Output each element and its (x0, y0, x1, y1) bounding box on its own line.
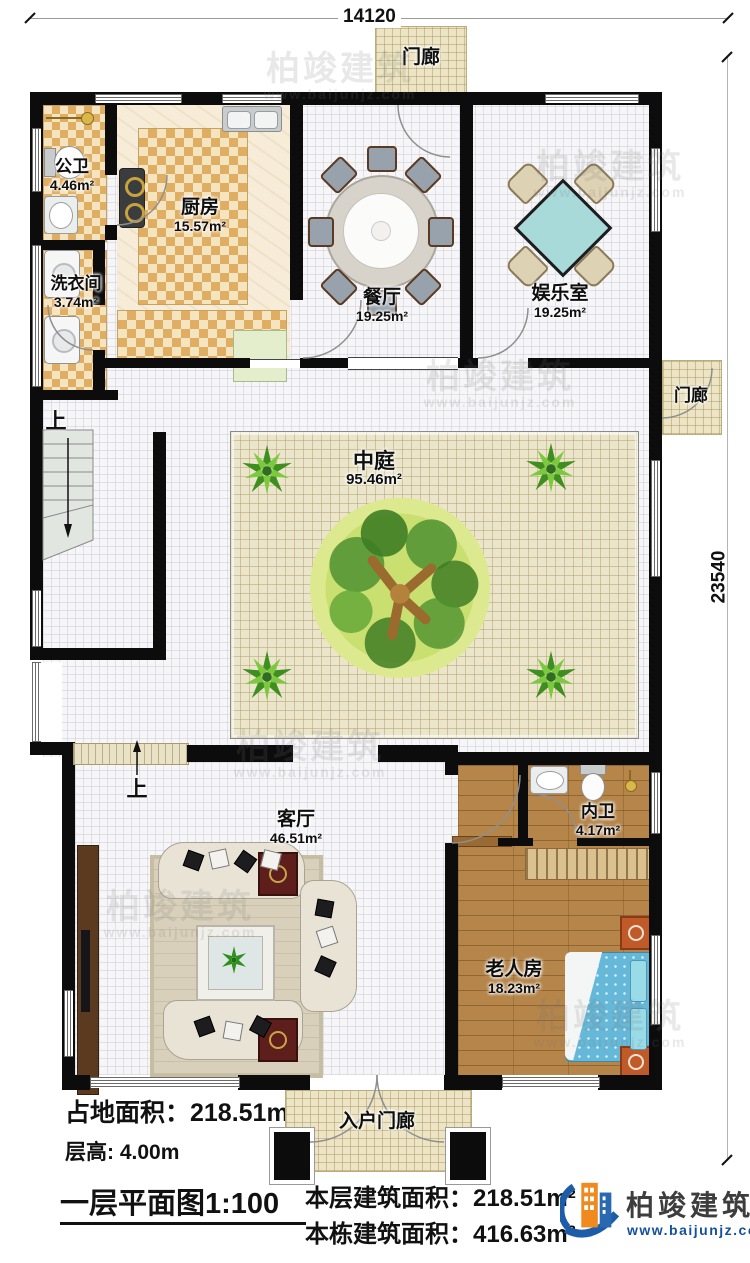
dining-chair (367, 146, 397, 172)
void-left (43, 662, 62, 742)
room-label-inner-bath: 内卫4.17m² (576, 802, 620, 838)
dining-chair (428, 217, 454, 247)
room-label-living: 客厅46.51m² (270, 810, 322, 846)
building-area-text: 本栋建筑面积：416.63m² (305, 1214, 576, 1249)
tree-icon (302, 490, 498, 686)
room-label-recreation: 娱乐室19.25m² (531, 284, 588, 320)
dimension-width-label: 14120 (338, 6, 401, 28)
stairs-up-label: 上 (46, 405, 67, 435)
brand-logo-icon (560, 1176, 622, 1242)
void-left2 (43, 757, 62, 1075)
washing-machine (44, 316, 80, 364)
floor-plan: 14120 23540 (0, 0, 750, 1263)
plan-title: 一层平面图1:100 (60, 1180, 279, 1222)
porch-side-label: 门廊 (674, 386, 708, 406)
bed-pillow (630, 960, 647, 1002)
inner-bath-sink (530, 766, 568, 794)
brand-logo: 柏竣建筑 www.baijunjz.com (560, 1174, 748, 1256)
table-plant-icon (218, 944, 250, 976)
room-label-elder-bedroom: 老人房18.23m² (485, 960, 542, 996)
room-label-kitchen: 厨房15.57m² (174, 198, 226, 234)
stairs-up-label-2: 上 (127, 773, 148, 803)
entry-column-left (270, 1128, 314, 1184)
floor-area-text: 本层建筑面积：218.51m² (305, 1178, 576, 1213)
brand-url: www.baijunjz.com (627, 1222, 750, 1238)
room-label-dining: 餐厅19.25m² (356, 288, 408, 324)
dining-table-center (371, 221, 391, 241)
dimension-height-label: 23540 (708, 546, 730, 609)
nightstand (620, 916, 652, 950)
plant-icon (238, 648, 296, 706)
bed-pillow (630, 1008, 647, 1050)
towel-bar (46, 117, 86, 119)
bed-sheet-fold (565, 952, 603, 1060)
plant-icon (522, 648, 580, 706)
pendant-lamp-icon (624, 770, 636, 792)
room-label-public-bath: 公卫4.46m² (50, 157, 94, 193)
entry-column-right (446, 1128, 490, 1184)
plant-icon (238, 442, 296, 500)
kitchen-cabinet (233, 330, 287, 382)
porch-entry-label: 入户门廊 (339, 1112, 415, 1132)
land-area-text: 占地面积：218.51m² (65, 1093, 297, 1129)
floor-height-text: 层高: 4.00m (65, 1136, 179, 1166)
dining-chair (308, 217, 334, 247)
bath-sink (44, 196, 78, 234)
brand-name: 柏竣建筑 (626, 1184, 750, 1224)
porch-top-label: 门廊 (402, 48, 440, 68)
room-label-courtyard: 中庭95.46m² (346, 452, 402, 488)
plant-icon (522, 440, 580, 498)
stove (119, 168, 145, 228)
plan-title-underline (60, 1222, 306, 1225)
wardrobe (525, 848, 651, 880)
kitchen-sink (222, 106, 282, 132)
tv (81, 930, 90, 1012)
dimension-line-right (727, 57, 728, 1160)
room-label-laundry: 洗衣间3.74m² (51, 274, 102, 310)
inner-toilet-icon (578, 764, 606, 800)
nightstand (620, 1046, 652, 1078)
